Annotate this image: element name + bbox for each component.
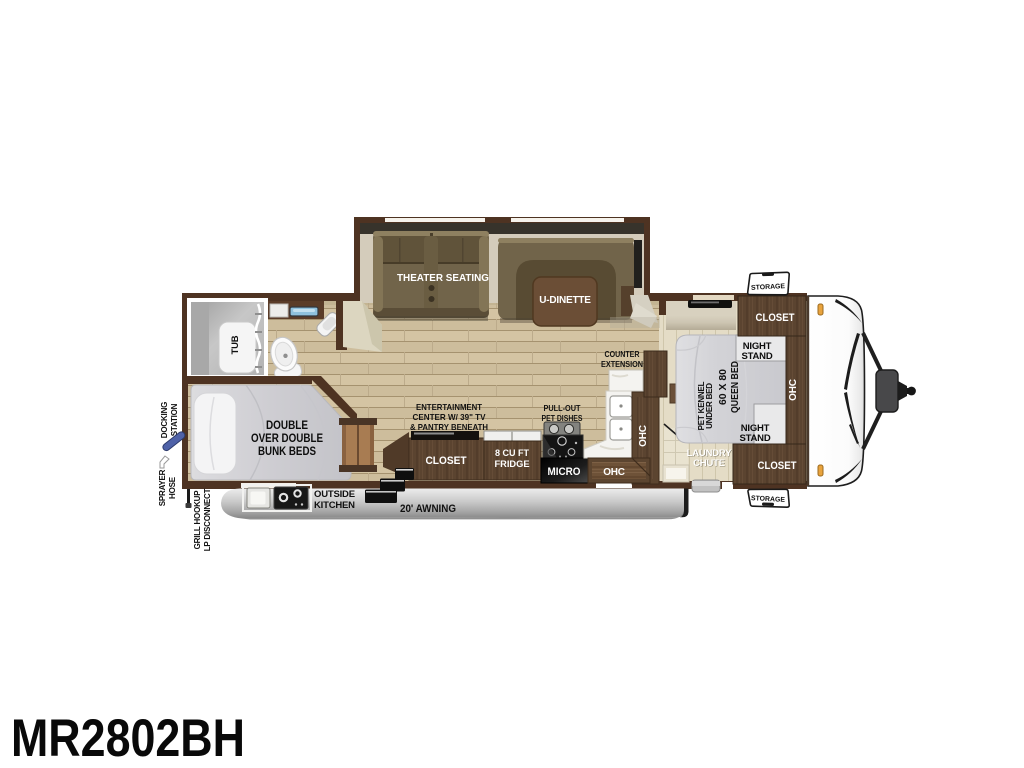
svg-text:OHC: OHC bbox=[788, 379, 799, 401]
svg-text:DOCKING: DOCKING bbox=[160, 402, 169, 438]
svg-text:KITCHEN: KITCHEN bbox=[314, 500, 355, 511]
svg-text:20' AWNING: 20' AWNING bbox=[400, 503, 456, 515]
svg-text:OVER DOUBLE: OVER DOUBLE bbox=[251, 433, 323, 445]
svg-text:COUNTER: COUNTER bbox=[605, 350, 640, 359]
svg-text:MICRO: MICRO bbox=[548, 466, 581, 478]
svg-text:60 X 80: 60 X 80 bbox=[718, 369, 729, 405]
svg-text:MR2802BH: MR2802BH bbox=[11, 709, 245, 768]
svg-text:ENTERTAINMENT: ENTERTAINMENT bbox=[416, 402, 483, 412]
svg-text:HOSE: HOSE bbox=[168, 476, 177, 499]
svg-text:STAND: STAND bbox=[741, 351, 772, 362]
svg-text:EXTENSION: EXTENSION bbox=[601, 360, 643, 369]
svg-text:CLOSET: CLOSET bbox=[756, 312, 795, 324]
svg-text:STAND: STAND bbox=[739, 433, 770, 444]
svg-text:PET DISHES: PET DISHES bbox=[542, 414, 584, 423]
svg-text:STATION: STATION bbox=[170, 403, 179, 436]
svg-text:DOUBLE: DOUBLE bbox=[266, 420, 308, 432]
svg-text:CLOSET: CLOSET bbox=[758, 460, 797, 472]
svg-text:CLOSET: CLOSET bbox=[426, 455, 467, 467]
svg-text:TUB: TUB bbox=[230, 335, 241, 354]
svg-text:SPRAYER: SPRAYER bbox=[158, 469, 167, 506]
svg-text:U-DINETTE: U-DINETTE bbox=[539, 295, 591, 306]
svg-text:THEATER SEATING: THEATER SEATING bbox=[397, 272, 489, 284]
svg-text:OUTSIDE: OUTSIDE bbox=[314, 489, 355, 500]
svg-text:LP DISCONNECT: LP DISCONNECT bbox=[203, 488, 212, 551]
svg-text:UNDER BED: UNDER BED bbox=[705, 383, 714, 429]
svg-text:BUNK BEDS: BUNK BEDS bbox=[258, 446, 316, 458]
svg-text:OHC: OHC bbox=[603, 467, 625, 478]
svg-text:GRILL HOOKUP: GRILL HOOKUP bbox=[193, 490, 202, 550]
svg-text:FRIDGE: FRIDGE bbox=[495, 459, 530, 470]
svg-text:CENTER W/ 39" TV: CENTER W/ 39" TV bbox=[413, 412, 486, 422]
svg-text:CHUTE: CHUTE bbox=[693, 458, 725, 469]
svg-text:8 CU FT: 8 CU FT bbox=[495, 448, 529, 459]
svg-text:PULL-OUT: PULL-OUT bbox=[544, 404, 581, 413]
svg-text:QUEEN BED: QUEEN BED bbox=[730, 361, 741, 413]
svg-text:& PANTRY BENEATH: & PANTRY BENEATH bbox=[410, 422, 488, 432]
svg-text:OHC: OHC bbox=[638, 425, 649, 447]
